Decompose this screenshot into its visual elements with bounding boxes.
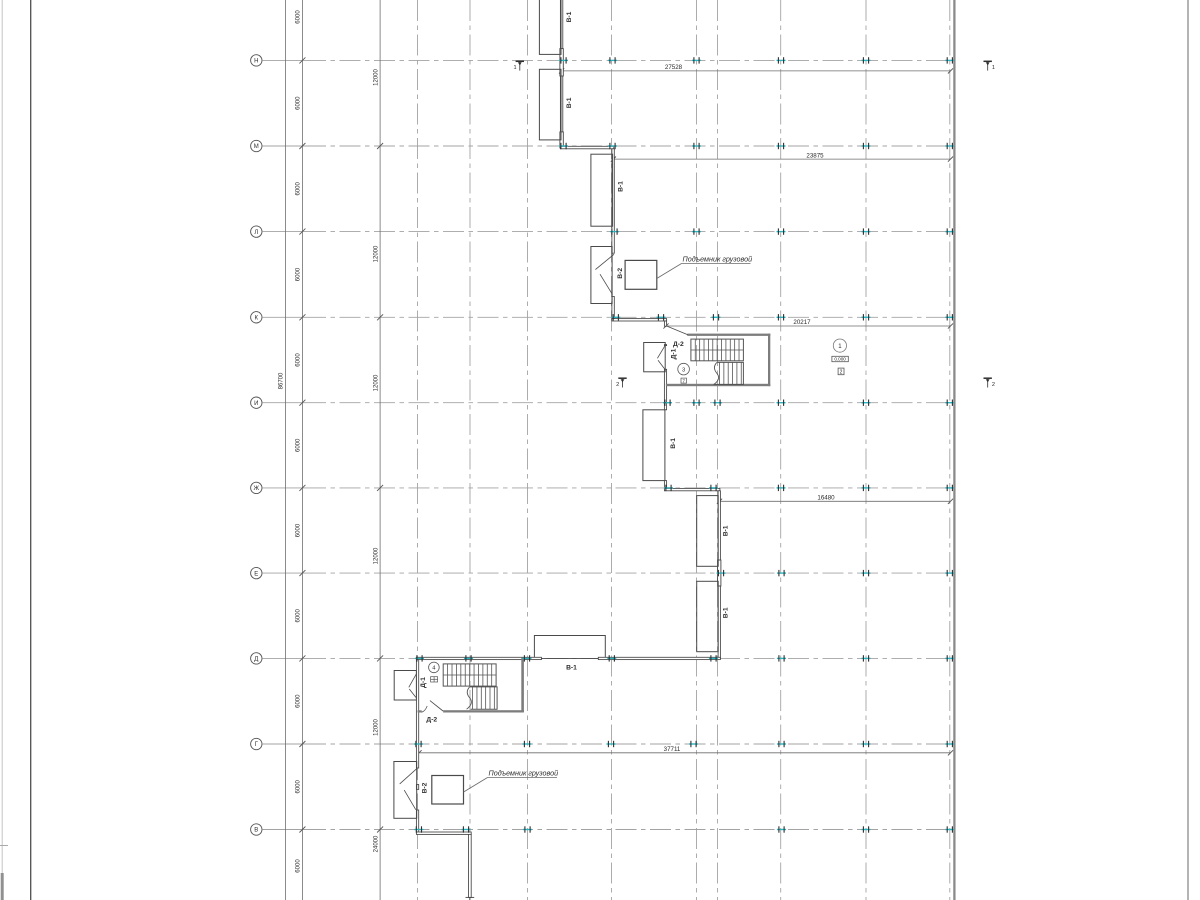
svg-text:3: 3	[682, 367, 685, 373]
svg-text:2: 2	[616, 382, 619, 388]
svg-text:27528: 27528	[665, 64, 683, 71]
svg-text:Д-2: Д-2	[673, 341, 684, 348]
svg-text:Н: Н	[254, 59, 258, 65]
svg-text:В-1: В-1	[618, 181, 625, 192]
svg-text:Л: Л	[254, 230, 258, 236]
svg-text:В: В	[254, 828, 258, 834]
svg-text:6000: 6000	[296, 438, 302, 452]
svg-text:12000: 12000	[373, 245, 379, 262]
svg-text:23875: 23875	[806, 152, 824, 159]
svg-text:В-1: В-1	[566, 11, 573, 22]
svg-text:В-2: В-2	[422, 782, 429, 793]
svg-text:6000: 6000	[296, 859, 302, 873]
svg-text:20217: 20217	[793, 319, 811, 326]
svg-text:Д-1: Д-1	[420, 677, 427, 688]
svg-text:Д-1: Д-1	[670, 348, 677, 359]
svg-text:Ж: Ж	[254, 486, 260, 492]
svg-text:6000: 6000	[296, 96, 302, 110]
svg-text:6000: 6000	[296, 267, 302, 281]
svg-text:12000: 12000	[373, 547, 379, 564]
svg-text:6000: 6000	[296, 694, 302, 708]
svg-text:Подъемник грузовой: Подъемник грузовой	[683, 254, 753, 263]
svg-text:16480: 16480	[817, 495, 835, 502]
svg-text:В-2: В-2	[617, 268, 624, 279]
svg-text:Подъемник грузовой: Подъемник грузовой	[489, 768, 559, 777]
svg-text:1: 1	[992, 65, 995, 71]
svg-text:0.000: 0.000	[834, 357, 846, 362]
svg-text:В-1: В-1	[723, 607, 730, 618]
svg-text:Д-2: Д-2	[426, 716, 437, 723]
svg-text:6000: 6000	[296, 779, 302, 793]
svg-text:37711: 37711	[664, 746, 681, 753]
svg-text:М: М	[254, 144, 259, 150]
svg-text:12000: 12000	[373, 718, 379, 735]
svg-text:6000: 6000	[296, 523, 302, 537]
svg-text:6000: 6000	[296, 353, 302, 367]
svg-text:6000: 6000	[296, 10, 302, 24]
svg-text:В-1: В-1	[723, 525, 730, 536]
svg-text:1: 1	[513, 65, 516, 71]
svg-text:86700: 86700	[279, 372, 285, 389]
svg-text:6000: 6000	[296, 608, 302, 622]
svg-text:К: К	[255, 316, 259, 322]
svg-text:2: 2	[992, 382, 995, 388]
svg-text:Е: Е	[254, 571, 258, 577]
svg-text:В-1: В-1	[566, 97, 573, 108]
svg-text:И: И	[254, 401, 258, 407]
svg-text:7: 7	[682, 378, 685, 383]
svg-text:В-1: В-1	[566, 664, 577, 671]
svg-text:24000: 24000	[373, 835, 379, 852]
svg-text:12000: 12000	[373, 68, 379, 85]
svg-text:6000: 6000	[296, 181, 302, 195]
svg-text:12000: 12000	[373, 374, 379, 391]
svg-text:В-1: В-1	[670, 438, 677, 449]
svg-text:2: 2	[840, 370, 843, 376]
svg-text:Д: Д	[254, 657, 258, 663]
